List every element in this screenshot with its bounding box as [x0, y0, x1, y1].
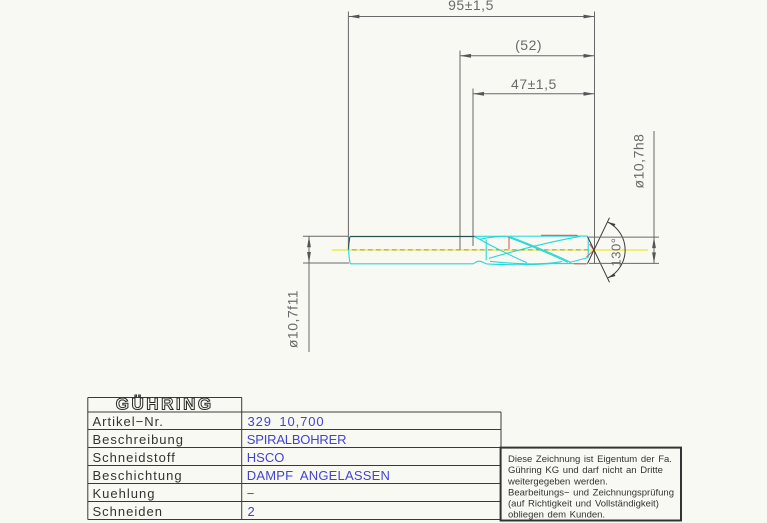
svg-text:SPIRALBOHRER: SPIRALBOHRER [247, 432, 346, 447]
svg-text:Gühring KG und darf nicht an D: Gühring KG und darf nicht an Dritte [508, 465, 663, 476]
svg-text:−: − [247, 486, 255, 501]
svg-text:DAMPF ANGELASSEN: DAMPF ANGELASSEN [247, 468, 390, 483]
svg-text:329 10,700: 329 10,700 [248, 414, 325, 429]
svg-text:obliegen dem Kunden.: obliegen dem Kunden. [508, 510, 605, 521]
svg-text:GÜHRING: GÜHRING [116, 395, 214, 414]
svg-text:47±1,5: 47±1,5 [511, 76, 557, 92]
svg-text:Beschreibung: Beschreibung [93, 432, 185, 447]
svg-text:Bearbeitungs− und Zeichnungspr: Bearbeitungs− und Zeichnungsprüfung [508, 488, 674, 499]
svg-text:Artikel−Nr.: Artikel−Nr. [93, 414, 164, 429]
svg-text:ø10,7f11: ø10,7f11 [285, 290, 301, 348]
svg-text:HSCO: HSCO [247, 450, 285, 465]
svg-text:Kuehlung: Kuehlung [93, 486, 156, 501]
svg-text:Diese Zeichnung ist Eigentum d: Diese Zeichnung ist Eigentum der Fa. [508, 454, 672, 465]
svg-text:Schneiden: Schneiden [93, 504, 163, 519]
svg-text:95±1,5: 95±1,5 [448, 0, 494, 13]
svg-text:(52): (52) [515, 37, 542, 53]
svg-text:weitergegeben werden.: weitergegeben werden. [507, 476, 608, 487]
svg-text:ø10,7h8: ø10,7h8 [631, 134, 647, 189]
svg-text:130°: 130° [609, 238, 624, 267]
svg-text:(auf Richtigkeit und Vollständ: (auf Richtigkeit und Vollständigkeit) [508, 499, 659, 510]
svg-text:Schneidstoff: Schneidstoff [93, 450, 176, 465]
svg-text:Beschichtung: Beschichtung [93, 468, 183, 483]
svg-text:2: 2 [248, 504, 255, 519]
